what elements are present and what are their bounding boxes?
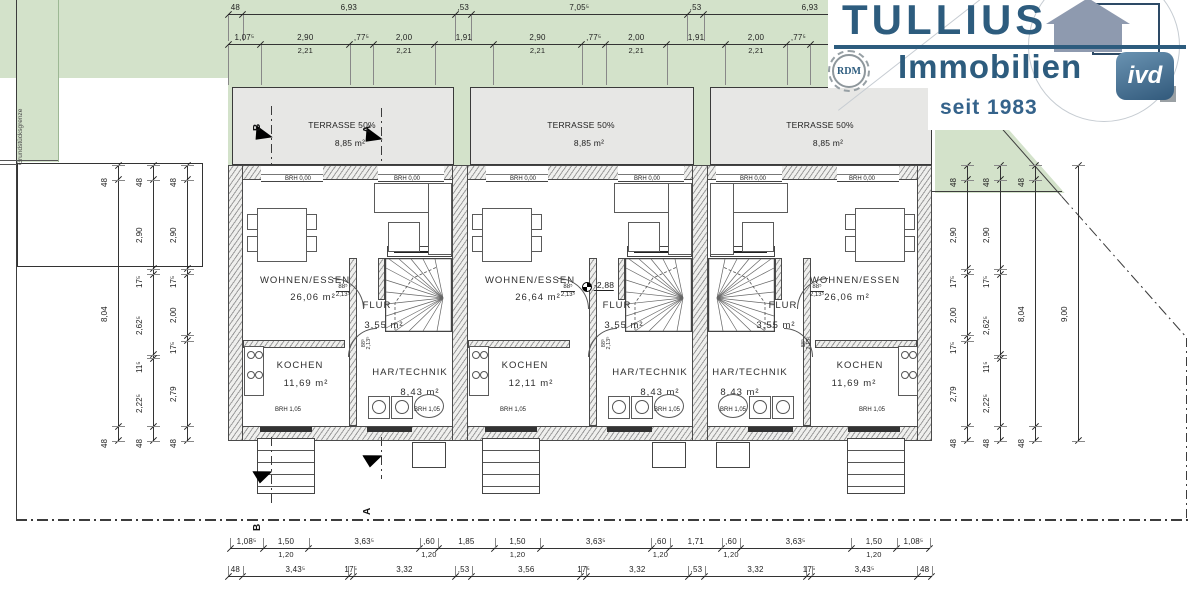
exterior-stairs [847,438,905,494]
dim-witness [961,180,974,181]
level-label: -2,88 [594,280,614,291]
dim-value: 1,71 [688,537,704,546]
terrace-area: 8,85 m² [335,138,365,148]
dryer-drum-icon [635,400,649,414]
dim-witness [1029,180,1042,181]
chair [904,236,915,252]
section-line [271,106,272,165]
dim-witness [606,45,607,85]
washer-drum-icon [612,400,626,414]
dim-chain-right3: 488,0448 [1023,165,1053,441]
dim-witness [670,538,671,548]
dim-value: ,60 [725,537,737,546]
stove [469,346,489,396]
dim-chain-right1: 482,9017⁵2,0017⁵2,7948 [955,165,985,441]
dim-witness [586,566,587,576]
dining-table [482,208,532,262]
door-size-label: 2,13⁵ [336,291,350,298]
terrace-name: TERRASSE 50% [547,120,615,130]
dim-value: 48 [135,439,144,448]
dim-value: 3,63⁵ [786,537,806,546]
chair [472,236,483,252]
dim-value: 48 [1017,178,1026,187]
dim-line [1078,165,1079,441]
dim-value: 3,56 [518,565,534,574]
exterior-stairs [257,438,315,494]
dim-value: ,77⁵ [586,33,601,42]
room-wohnen-area: 26,64 m² [515,292,561,303]
dim-value-sub: 2,21 [298,46,313,55]
section-line [381,437,382,479]
section-label: A [362,508,373,515]
dim-value: 48 [982,439,991,448]
dim-value: 48 [231,565,240,574]
dim-witness [930,538,931,548]
dim-value: 2,62⁵ [135,316,144,335]
dim-value: 17⁵ [169,276,178,288]
dim-value: ,77⁵ [791,33,806,42]
dim-line [1000,165,1001,441]
dim-witness [812,566,813,576]
dim-witness [261,45,262,85]
dim-witness [181,341,194,342]
dim-witness [932,566,933,576]
sill-label: BRH 1,05 [859,407,885,413]
dim-value-sub: 2,21 [748,46,763,55]
dim-value-sub: 1,20 [510,550,525,559]
dim-witness [112,426,125,427]
room-kochen-area: 11,69 m² [284,378,329,389]
dim-line [1035,165,1036,441]
stove [898,346,918,396]
burner-icon [472,371,480,379]
dim-witness [455,566,456,576]
dim-value: ,60 [423,537,435,546]
sofa-side [710,183,734,255]
room-kochen: KOCHEN [277,360,324,371]
light-well [716,442,750,468]
boundary-label: Grundstücksgrenze [17,109,24,165]
dim-value: 2,79 [169,387,178,403]
dim-witness [435,45,436,85]
door-size-label: 88⁵ [812,284,821,290]
dim-value: ,53 [457,3,469,12]
dim-witness [994,355,1007,356]
dim-line [153,165,154,441]
dim-witness [495,538,496,548]
dim-witness [961,341,974,342]
dim-value: 2,00 [748,33,764,42]
dim-witness [961,274,974,275]
dim-value: 2,90 [982,227,991,243]
dim-value: 3,32 [747,565,763,574]
dim-witness [810,45,811,85]
burner-icon [247,371,255,379]
dim-witness [994,441,1007,442]
dryer [749,396,771,419]
dim-value: 6,93 [341,3,357,12]
dim-line [187,165,188,441]
dim-witness [1029,426,1042,427]
dim-witness [181,441,194,442]
ivd-badge: ivd [1116,52,1174,100]
property-line-right-dashed [1186,338,1187,520]
dim-value: ,77⁵ [354,33,369,42]
dim-value: 1,85 [458,537,474,546]
dim-chain-right2: 482,9017⁵2,62⁵11⁵2,22⁵48 [988,165,1018,441]
washer [772,396,794,419]
dim-value: 7,05⁵ [569,3,589,12]
light-well [652,442,686,468]
dim-chain-left3: 482,9017⁵2,0017⁵2,7948 [175,165,205,441]
dim-chain-bottom1: 1,08⁵1,501,203,63⁵,601,201,851,501,203,6… [230,536,930,566]
washer-drum-icon [372,400,386,414]
dim-witness [420,538,421,548]
dim-value: 2,90 [169,227,178,243]
dim-witness [493,45,494,85]
dim-line [118,165,119,441]
chair [531,236,542,252]
door-size-label: 88⁵ [563,284,572,290]
burner-icon [901,351,909,359]
room-wohnen-area: 26,06 m² [290,292,336,303]
chair [306,214,317,230]
dim-witness [897,538,898,548]
dim-witness [917,566,918,576]
dining-table [257,208,307,262]
dim-witness [181,426,194,427]
dim-value: 2,00 [628,33,644,42]
dim-witness [147,269,160,270]
logo-block: TULLIUS RDM Immobilien ivd seit 1983 [828,0,1200,170]
bottom-window-bar [367,427,412,432]
dim-value: 11⁵ [135,361,144,373]
dim-value: 17⁵ [135,276,144,288]
room-flur: FLUR [603,300,632,311]
exterior-stairs [482,438,540,494]
room-kochen: KOCHEN [837,360,884,371]
terrace-area: 8,85 m² [574,138,604,148]
wall-left [228,165,243,441]
chair [845,236,856,252]
stair-side-wall [378,258,385,300]
dryer [631,396,653,419]
dim-value: 8,04 [1017,306,1026,322]
burner-icon [901,371,909,379]
dim-chain-left1: 488,0448 [106,165,136,441]
dim-value-sub: 2,21 [530,46,545,55]
dim-chain-top1: 486,93,537,05⁵,536,93 [228,2,916,32]
dim-value: 2,90 [297,33,313,42]
dim-value: 48 [1017,439,1026,448]
room-flur: FLUR [769,300,798,311]
chair [247,236,258,252]
dim-witness [725,45,726,85]
coffee-table [742,222,774,252]
sill-label: BRH 1,05 [414,407,440,413]
dim-witness [147,165,160,166]
dim-witness [112,180,125,181]
burner-icon [909,351,917,359]
dim-value-sub: 1,20 [866,550,881,559]
dim-witness [181,269,194,270]
dim-witness [961,426,974,427]
dim-value: 3,32 [629,565,645,574]
section-line [271,437,272,503]
dim-witness [243,566,244,576]
dim-value: 48 [231,3,240,12]
burner-icon [247,351,255,359]
door-size-label: 2,13⁵ [561,291,575,298]
dim-value: 48 [982,178,991,187]
dim-value: ,60 [655,537,667,546]
light-well [412,442,446,468]
dim-value: 3,43⁵ [286,565,306,574]
dim-line [228,14,916,15]
dim-value: 1,50 [866,537,882,546]
dim-value: 2,22⁵ [982,394,991,413]
dim-value: 1,07⁵ [235,33,255,42]
dim-value: 48 [920,565,929,574]
sink [414,394,444,418]
dining-table [855,208,905,262]
level-marker-icon [582,282,592,292]
section-label: B [252,524,263,531]
room-wohnen-area: 26,06 m² [824,292,870,303]
dim-witness [582,45,583,85]
dim-value: 48 [169,178,178,187]
chair [904,214,915,230]
dim-value: 2,00 [396,33,412,42]
dim-witness [181,335,194,336]
dim-value: 6,93 [802,3,818,12]
sofa-side [668,183,692,255]
sill-label: BRH 1,05 [720,407,746,413]
dim-value: 48 [949,439,958,448]
party-wall-2 [692,165,708,441]
logo-brand: TULLIUS [842,0,1047,44]
wall-top [228,165,932,180]
dim-value: 9,00 [1060,306,1069,322]
dim-witness [228,45,229,85]
sill-label: BRH 0,00 [849,176,875,182]
bottom-window-bar [260,427,312,432]
dim-value-sub: 1,20 [278,550,293,559]
rdm-badge-label: RDM [837,66,861,77]
dim-witness [147,426,160,427]
dryer-drum-icon [395,400,409,414]
dim-chain-left2: 482,9017⁵2,62⁵11⁵2,22⁵48 [141,165,171,441]
room-kochen-area: 12,11 m² [509,378,554,389]
dim-witness [230,538,231,548]
dryer-drum-icon [753,400,767,414]
room-kochen-area: 11,69 m² [832,378,877,389]
dim-witness [787,45,788,85]
dim-witness [705,566,706,576]
sink [654,394,684,418]
washer-drum-icon [776,400,790,414]
dim-value: 48 [949,178,958,187]
room-flur: FLUR [363,300,392,311]
bottom-window-bar [485,427,537,432]
dim-line [967,165,968,441]
chair [531,214,542,230]
dim-witness [1029,441,1042,442]
dim-witness [181,180,194,181]
dim-value: 2,22⁵ [135,394,144,413]
dim-value: 48 [135,178,144,187]
dim-witness [373,45,374,85]
wall-right [917,165,932,441]
dim-witness [350,45,351,85]
dim-witness [851,538,852,548]
dim-value: ,53 [458,565,470,574]
dim-witness [994,358,1007,359]
coffee-table [628,222,660,252]
dim-witness [228,566,229,576]
sill-label: BRH 1,05 [500,407,526,413]
dim-witness [722,538,723,548]
dim-witness [994,426,1007,427]
dim-witness [688,566,689,576]
dim-value: 1,50 [509,537,525,546]
dim-value: 11⁵ [982,361,991,373]
door-size-label: 88⁵ [338,284,347,290]
dim-witness [961,335,974,336]
dim-chain-top2: 1,07⁵2,902,21,77⁵2,002,211,912,902,21,77… [228,32,932,62]
dim-value: 2,00 [169,308,178,324]
dim-value: 3,63⁵ [586,537,606,546]
stair-side-wall [775,258,782,300]
burner-icon [909,371,917,379]
sink [718,394,748,418]
dim-witness [1072,441,1085,442]
dim-value-sub: 2,21 [629,46,644,55]
dim-witness [354,566,355,576]
dim-witness [438,538,439,548]
dim-value: 1,08⁵ [903,537,923,546]
dim-witness [994,269,1007,270]
stair-side-wall [618,258,625,300]
room-kochen: KOCHEN [502,360,549,371]
sill-label: BRH 1,05 [275,407,301,413]
dim-value: 2,79 [949,387,958,403]
dim-witness [263,538,264,548]
room-technik: HAR/TECHNIK [712,367,787,378]
wall-bottom [228,426,932,441]
dim-witness [147,274,160,275]
washer [608,396,630,419]
dim-witness [147,358,160,359]
sill-label: BRH 0,00 [634,176,660,182]
dim-value: 8,04 [100,306,109,322]
dim-value: 1,91 [688,33,704,42]
dim-witness [112,165,125,166]
dim-chain-bottom2: 483,43⁵17⁵3,32,533,5617⁵3,32,533,3217⁵3,… [228,564,932,594]
dim-witness [309,538,310,548]
dim-value: ,53 [691,565,703,574]
burner-icon [255,371,263,379]
dim-witness [961,441,974,442]
sofa-side [428,183,452,255]
chair [845,214,856,230]
dim-value: 2,90 [529,33,545,42]
dim-value: 48 [100,178,109,187]
dim-value: 2,90 [135,227,144,243]
dim-value: 1,91 [456,33,472,42]
party-wall-1 [452,165,468,441]
sill-label: BRH 0,00 [510,176,536,182]
bottom-window-bar [607,427,652,432]
door-size-label-vertical: 88⁵ 2,13⁵ [362,332,372,354]
door-size-label: 2,13⁵ [810,291,824,298]
room-technik: HAR/TECHNIK [372,367,447,378]
dim-witness [740,538,741,548]
dim-value: 2,62⁵ [982,316,991,335]
chair [472,214,483,230]
sill-label: BRH 0,00 [285,176,311,182]
dim-value-sub: 2,21 [396,46,411,55]
ivd-badge-label: ivd [1128,62,1163,90]
logo-house-roof-icon [1046,0,1130,24]
section-line [381,108,382,165]
stove [244,346,264,396]
door-size-label-vertical: 88⁵ 2,13⁵ [602,332,612,354]
dim-value: 3,63⁵ [354,537,374,546]
sill-label: BRH 0,00 [394,176,420,182]
dim-chain-right4: 9,00 [1066,165,1096,441]
dim-witness [994,274,1007,275]
dim-value: 48 [100,439,109,448]
dim-witness [147,441,160,442]
dim-value: 3,32 [396,565,412,574]
dim-witness [181,165,194,166]
dim-value: ,53 [690,3,702,12]
burner-icon [480,351,488,359]
chair [247,214,258,230]
dim-value: 1,08⁵ [237,537,257,546]
door-size-label-vertical: 88⁵ 2,13⁵ [802,332,812,354]
chair [306,236,317,252]
dim-line [230,548,930,549]
section-label: A [362,126,373,133]
dim-value: 17⁵ [949,342,958,354]
dim-value: 1,50 [278,537,294,546]
dim-witness [181,274,194,275]
burner-icon [255,351,263,359]
sill-label: BRH 0,00 [740,176,766,182]
dim-witness [472,566,473,576]
dim-witness [540,538,541,548]
dim-witness [994,180,1007,181]
room-technik: HAR/TECHNIK [612,367,687,378]
dim-witness [651,538,652,548]
coffee-table [388,222,420,252]
dim-value: 2,00 [949,308,958,324]
bottom-window-bar [848,427,900,432]
burner-icon [472,351,480,359]
dryer [391,396,413,419]
dim-value: 2,90 [949,227,958,243]
logo-since: seit 1983 [940,96,1038,120]
dim-value: 17⁵ [982,276,991,288]
bottom-window-bar [748,427,793,432]
section-label: B [252,124,263,131]
sill-label: BRH 1,05 [654,407,680,413]
dim-witness [147,355,160,356]
burner-icon [480,371,488,379]
dim-witness [667,45,668,85]
